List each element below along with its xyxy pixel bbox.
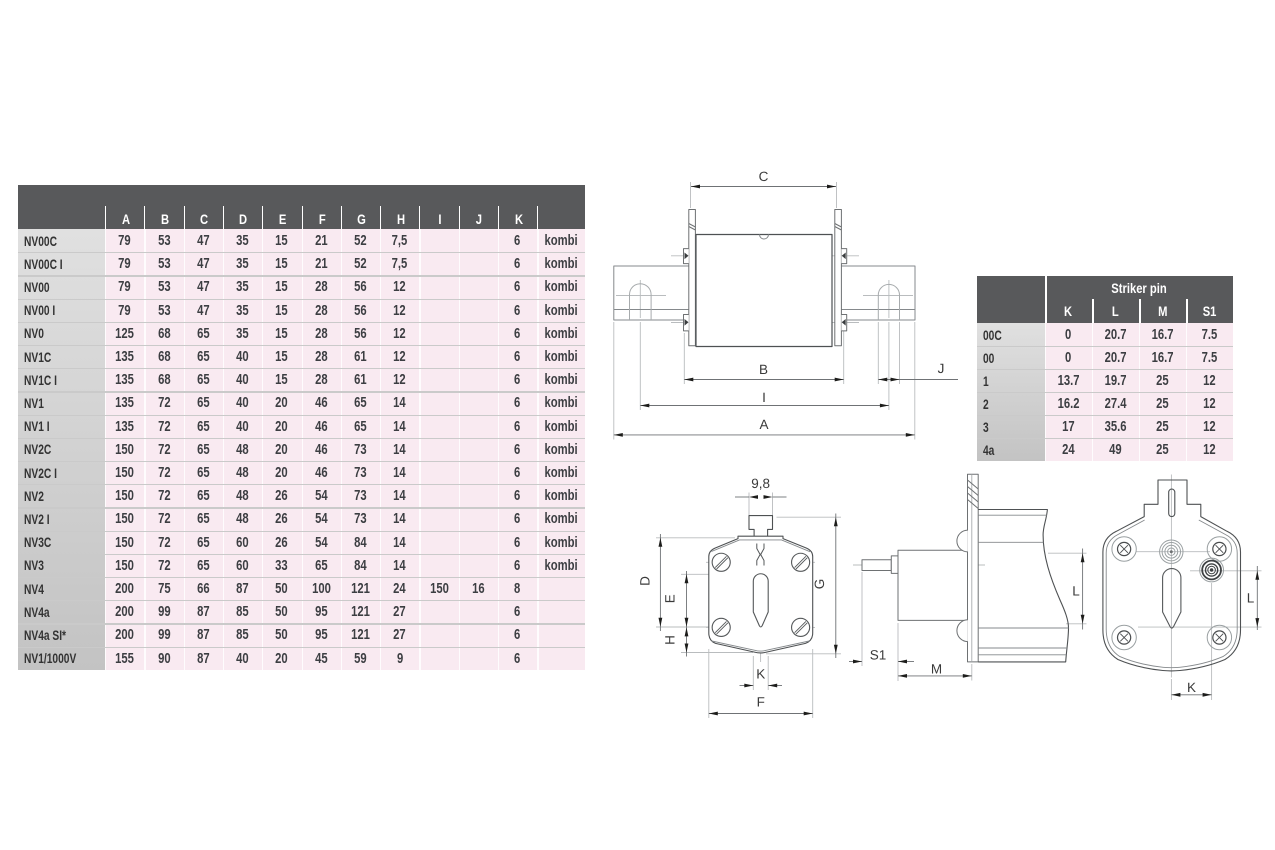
svg-text:9,8: 9,8	[751, 476, 770, 491]
svg-text:I: I	[762, 390, 766, 405]
svg-text:L: L	[1072, 584, 1080, 599]
svg-text:M: M	[931, 661, 942, 676]
svg-text:G: G	[812, 579, 827, 590]
svg-text:L: L	[1247, 590, 1255, 605]
svg-text:K: K	[756, 666, 765, 681]
svg-text:J: J	[938, 361, 945, 376]
svg-text:K: K	[1187, 680, 1196, 695]
svg-text:B: B	[759, 362, 768, 377]
svg-text:D: D	[638, 576, 653, 586]
svg-text:C: C	[759, 169, 769, 184]
svg-text:H: H	[663, 635, 678, 645]
svg-text:S1: S1	[870, 648, 887, 663]
svg-text:F: F	[757, 694, 765, 709]
svg-text:A: A	[759, 417, 768, 432]
svg-text:E: E	[663, 594, 678, 603]
